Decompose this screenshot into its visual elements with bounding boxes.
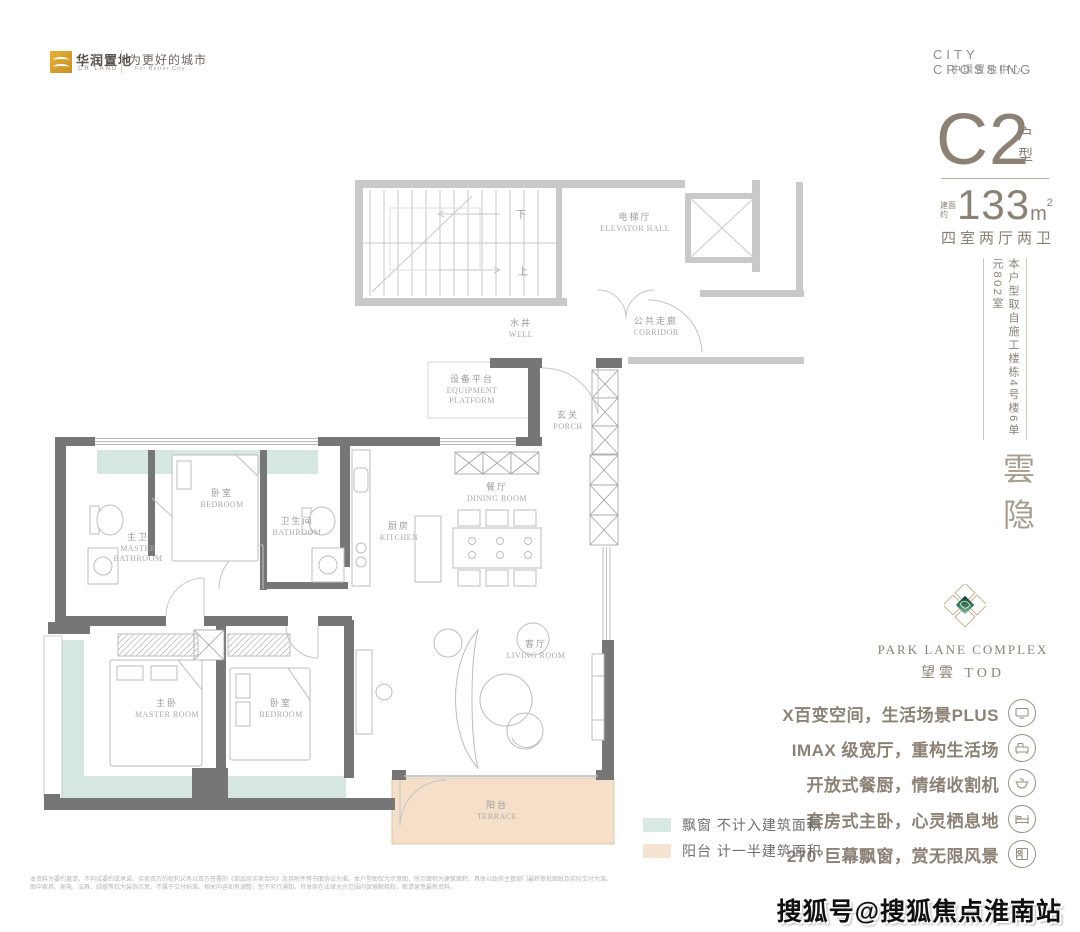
park-lane-emblem-icon — [944, 584, 986, 630]
stair-label-up: 上 — [518, 263, 528, 278]
legend-swatch-terrace — [643, 844, 671, 858]
room-label-well: 水井WELL — [509, 318, 533, 340]
residence-name: 雲隐 — [994, 452, 1040, 544]
room-label-living-room: 客厅LIVING ROOM — [506, 639, 565, 661]
legend-bay-window: 飘窗 不计入建筑面积 — [643, 815, 822, 835]
pot-icon — [1008, 769, 1036, 797]
unit-code-suffix: 户型 — [1014, 126, 1035, 168]
room-label-bedroom-top: 卧室BEDROOM — [200, 488, 244, 510]
monitor-icon — [1008, 699, 1036, 727]
stairs — [363, 190, 556, 296]
rooms-spec: 四室两厅两卫 — [941, 227, 1055, 248]
room-label-dining-room: 餐厅DINING ROOM — [467, 482, 527, 504]
room-label-porch: 玄关PORCH — [553, 410, 582, 432]
area-unit: m — [1030, 203, 1047, 225]
floorplan-poster: 华润置地 CR LAND 为更好的城市 For Better City CITY… — [0, 0, 1080, 932]
room-label-master-room: 主卧MASTER ROOM — [135, 698, 199, 720]
source-note: 本户型取自施工楼栋4号楼6单元802室 — [983, 258, 1027, 440]
area-superscript: 2 — [1047, 197, 1053, 209]
room-label-bedroom-second: 卧室BEDROOM — [259, 698, 303, 720]
legend-terrace: 阳台 计一半建筑面积 — [643, 841, 822, 861]
sofa-icon — [1008, 734, 1036, 762]
unit-area: 建面约133m2 — [940, 185, 1053, 225]
window-view-icon — [1008, 840, 1036, 868]
room-label-elevator-hall: 电梯厅ELEVATOR HALL — [600, 212, 670, 234]
selling-point-1: X百变空间，生活场景PLUS — [782, 698, 1036, 728]
room-label-bathroom: 卫生间BATHROOM — [273, 516, 322, 538]
area-prefix: 建面约 — [940, 201, 957, 219]
elevator-shaft — [688, 196, 756, 260]
selling-point-5: 270°巨幕飘窗，赏无限风景 — [787, 839, 1036, 869]
stair-label-down: 下 — [516, 206, 526, 221]
selling-point-3: 开放式餐厨，情绪收割机 — [807, 768, 1037, 798]
selling-point-2: IMAX 级宽厅，重构生活场 — [792, 733, 1036, 763]
area-number: 133 — [957, 185, 1030, 225]
disclaimer-text: 本资料为要约邀请，不构成要约或承诺，买卖双方的权利义务以双方签署的《商品房买卖合… — [30, 876, 1052, 892]
panel-divider — [941, 178, 1049, 179]
room-label-terrace: 阳台TERRACE — [477, 800, 517, 822]
selling-point-4: 套房式主卧，心灵栖息地 — [807, 804, 1037, 834]
brand-cn-label: 望雲 TOD — [863, 662, 1063, 682]
room-label-kitchen: 厨房KITCHEN — [380, 521, 419, 543]
room-label-corridor: 公共走廊CORRIDOR — [633, 316, 678, 338]
watermark: 搜狐号@搜狐焦点淮南站 — [777, 892, 1062, 928]
room-label-master-bathroom: 主卫MASTER BATHROOM — [99, 532, 177, 564]
bed-icon — [1008, 805, 1036, 833]
room-label-equipment-platform: 设备平台EQUIPMENT PLATFORM — [426, 374, 518, 406]
brand-en-label: PARK LANE COMPLEX — [863, 642, 1063, 658]
legend-swatch-bay — [643, 818, 671, 832]
